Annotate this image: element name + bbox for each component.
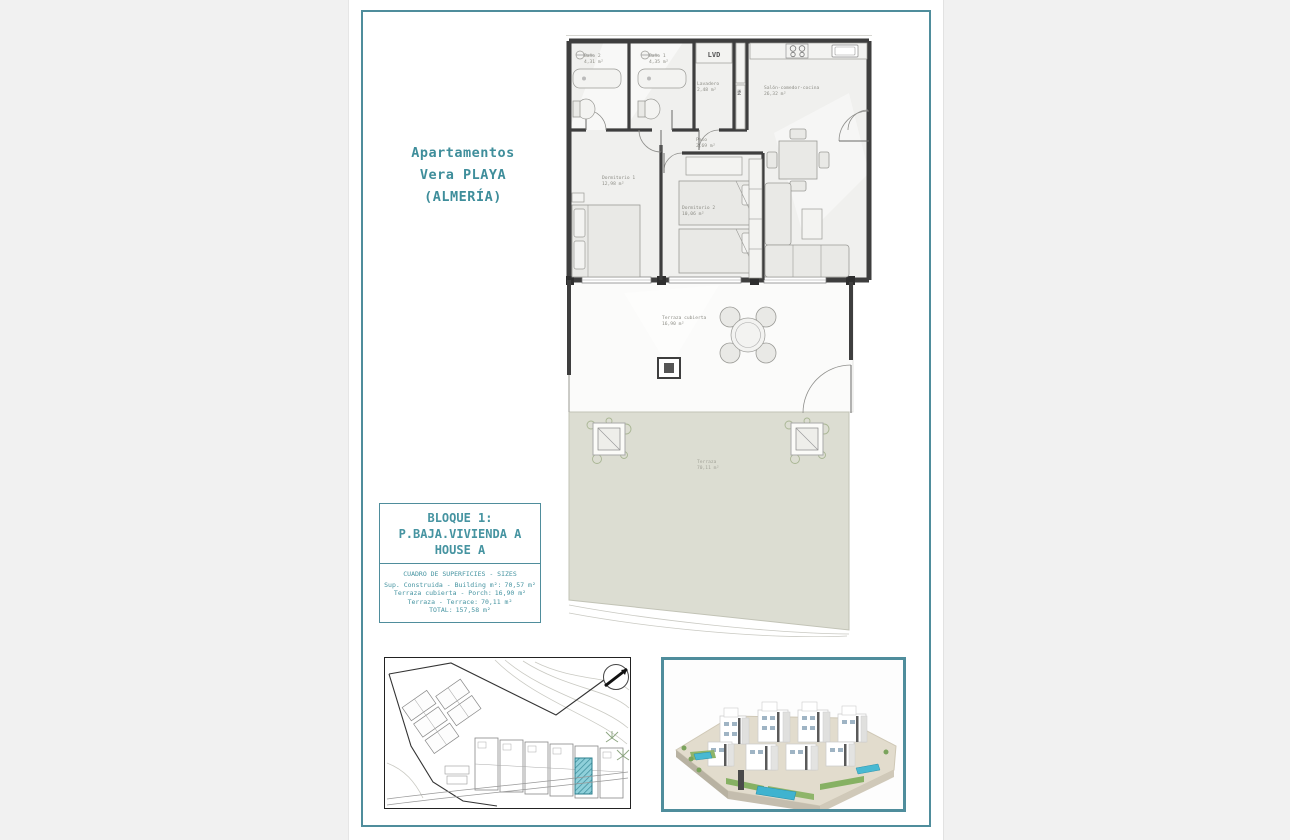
room-label-dorm2: Dormitorio 2 <box>682 205 715 211</box>
render-thumbnail <box>661 657 906 812</box>
room-area-terraza-cubierta: 16,90 m² <box>662 321 684 327</box>
surface-label: Terraza cubierta - Porch: <box>394 589 492 597</box>
site-plan-drawing <box>385 658 630 808</box>
building-block <box>720 708 749 744</box>
unit-block-title: BLOQUE 1: P.BAJA.VIVIENDA A HOUSE A <box>380 504 540 564</box>
surfaces-title: CUADRO DE SUPERFICIES - SIZES <box>382 570 538 579</box>
building-cluster-upper <box>402 671 487 754</box>
surface-value: 70,57 m² <box>505 581 536 589</box>
project-title: Apartamentos Vera PLAYA (ALMERÍA) <box>373 142 553 208</box>
surface-row-building: Sup. Construida - Building m²:70,57 m² <box>382 581 538 590</box>
room-area-terraza: 70,11 m² <box>697 465 719 471</box>
floor-plan: LVD MH <box>564 33 876 637</box>
dorm2-wardrobe <box>749 159 762 278</box>
room-label-bano1: Baño 1 <box>649 53 666 59</box>
surface-row-terrace: Terraza - Terrace:70,11 m² <box>382 598 538 607</box>
north-arrow-icon <box>604 665 629 690</box>
surface-label: TOTAL: <box>429 606 452 614</box>
project-title-line-3: (ALMERÍA) <box>373 186 553 208</box>
room-area-paso: 2,69 m² <box>696 143 715 149</box>
site-plan-thumbnail <box>384 657 631 809</box>
coffee-table <box>802 209 822 239</box>
room-label-bano2: Baño 2 <box>584 53 601 59</box>
building-block <box>826 742 855 766</box>
render-drawing <box>664 660 903 809</box>
project-title-line-1: Apartamentos <box>373 142 553 164</box>
surface-label: Sup. Construida - Building m²: <box>384 581 501 589</box>
mh-label: MH <box>737 89 743 95</box>
block-line-2: P.BAJA.VIVIENDA A <box>380 526 540 542</box>
kitchen-counter <box>750 43 867 59</box>
room-label-salon: Salón-comedor-cocina <box>764 84 820 91</box>
surface-value: 157,58 m² <box>456 606 491 614</box>
surface-row-total: TOTAL:157,58 m² <box>382 606 538 615</box>
lvd-label: LVD <box>708 51 721 59</box>
building-block <box>838 706 867 742</box>
room-label-paso: Paso <box>696 137 707 143</box>
block-line-1: BLOQUE 1: <box>380 510 540 526</box>
room-area-salon: 26,32 m² <box>764 91 786 97</box>
surface-value: 16,90 m² <box>495 589 526 597</box>
palm-tree <box>606 731 618 742</box>
room-area-dorm2: 10,06 m² <box>682 211 704 217</box>
room-label-terraza: Terraza <box>697 459 717 465</box>
floor-plan-drawing: LVD MH <box>564 33 876 637</box>
surface-value: 70,11 m² <box>481 598 512 606</box>
covered-terrace-floor <box>569 280 853 412</box>
building-block <box>798 702 830 742</box>
room-area-dorm1: 12,98 m² <box>602 181 624 187</box>
highlighted-unit <box>575 758 592 794</box>
mh-cabinet <box>736 43 745 129</box>
room-label-terraza-cubierta: Terraza cubierta <box>662 315 706 321</box>
surface-label: Terraza - Terrace: <box>408 598 478 606</box>
block-line-3: HOUSE A <box>380 542 540 558</box>
project-title-line-2: Vera PLAYA <box>373 164 553 186</box>
surface-row-porch: Terraza cubierta - Porch:16,90 m² <box>382 589 538 598</box>
unit-info-box: BLOQUE 1: P.BAJA.VIVIENDA A HOUSE A CUAD… <box>379 503 541 623</box>
tree <box>697 768 702 773</box>
terrace-column <box>658 358 680 378</box>
building-block <box>786 744 818 770</box>
building-block <box>758 702 790 742</box>
contour-line <box>387 763 423 798</box>
tree <box>884 750 889 755</box>
room-area-bano2: 4,31 m² <box>584 59 603 65</box>
window-salon-slider <box>764 277 826 283</box>
room-area-lavadero: 2,48 m² <box>697 87 716 93</box>
tower <box>738 770 744 790</box>
room-label-lavadero: Lavadero <box>697 81 719 87</box>
window-dorm1 <box>582 277 651 283</box>
surfaces-table: CUADRO DE SUPERFICIES - SIZES Sup. Const… <box>380 564 540 622</box>
window-dorm2 <box>669 277 741 283</box>
document-sheet: Apartamentos Vera PLAYA (ALMERÍA) <box>348 0 944 840</box>
tree <box>689 757 694 762</box>
tree <box>682 746 687 751</box>
dorm1-bed <box>572 193 640 277</box>
building-block <box>746 744 778 770</box>
room-label-dorm1: Dormitorio 1 <box>602 175 635 181</box>
room-area-bano1: 4,35 m² <box>649 59 668 65</box>
